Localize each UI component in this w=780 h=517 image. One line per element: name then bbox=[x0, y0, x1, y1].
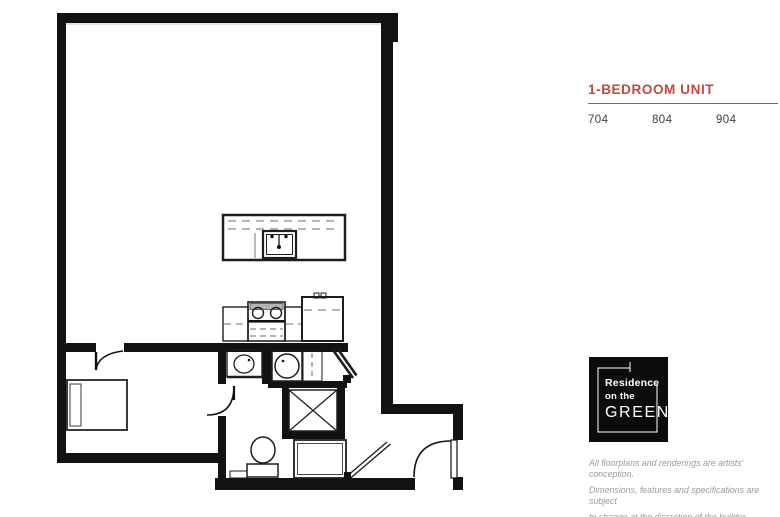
walls bbox=[57, 13, 463, 490]
bathroom-door bbox=[207, 386, 234, 415]
toilet bbox=[230, 437, 278, 478]
logo-text: Residence on the GREEN bbox=[605, 378, 670, 421]
island-sink bbox=[263, 231, 296, 258]
page: 1-BEDROOM UNIT 704 804 904 Residence on … bbox=[0, 0, 780, 517]
page-title: 1-BEDROOM UNIT bbox=[588, 82, 780, 97]
residence-on-the-green-logo: Residence on the GREEN bbox=[589, 357, 668, 442]
shaft-x-box bbox=[289, 390, 337, 431]
refrigerator bbox=[302, 293, 343, 341]
angled-closet-door bbox=[333, 349, 357, 384]
entry-door bbox=[414, 440, 457, 478]
unit-number-list: 704 804 904 bbox=[588, 114, 780, 126]
logo-line-green: GREEN bbox=[605, 405, 670, 421]
floorplan-drawing bbox=[0, 0, 520, 517]
disclaimer-line: to change at the discretion of the build… bbox=[589, 512, 779, 517]
unit-number: 704 bbox=[588, 114, 652, 126]
disclaimer: All floorplans and renderings are artist… bbox=[589, 458, 779, 517]
shower bbox=[294, 440, 391, 479]
unit-number: 904 bbox=[716, 114, 780, 126]
info-panel: 1-BEDROOM UNIT 704 804 904 bbox=[588, 82, 780, 126]
disclaimer-line: All floorplans and renderings are artist… bbox=[589, 458, 779, 480]
logo-line-residence: Residence bbox=[605, 378, 670, 389]
bed bbox=[67, 380, 127, 430]
laundry-closet bbox=[272, 349, 357, 384]
kitchen-counter-run bbox=[223, 293, 343, 341]
kitchen-island bbox=[223, 215, 345, 260]
disclaimer-line: Dimensions, features and specifications … bbox=[589, 485, 779, 507]
washer bbox=[272, 351, 302, 381]
closet-bifold bbox=[303, 351, 322, 381]
bedroom-door bbox=[96, 351, 123, 370]
range bbox=[248, 302, 285, 341]
logo-line-on-the: on the bbox=[605, 392, 670, 402]
title-rule bbox=[588, 103, 778, 104]
unit-number: 804 bbox=[652, 114, 716, 126]
vanity-sink bbox=[227, 350, 262, 377]
